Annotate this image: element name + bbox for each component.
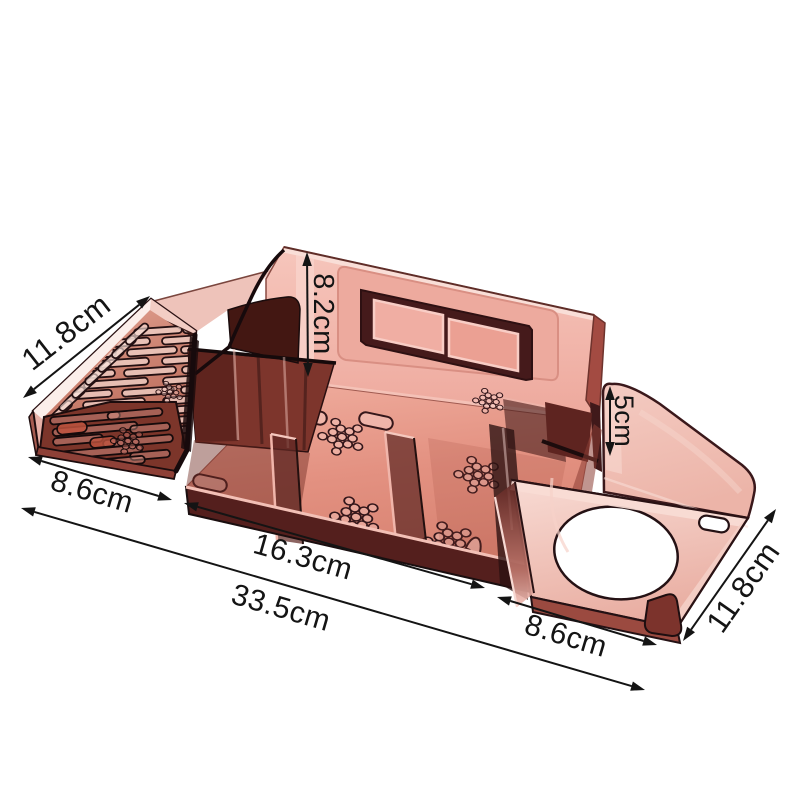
svg-text:8.2cm: 8.2cm <box>307 273 339 354</box>
svg-text:5cm: 5cm <box>609 395 639 448</box>
